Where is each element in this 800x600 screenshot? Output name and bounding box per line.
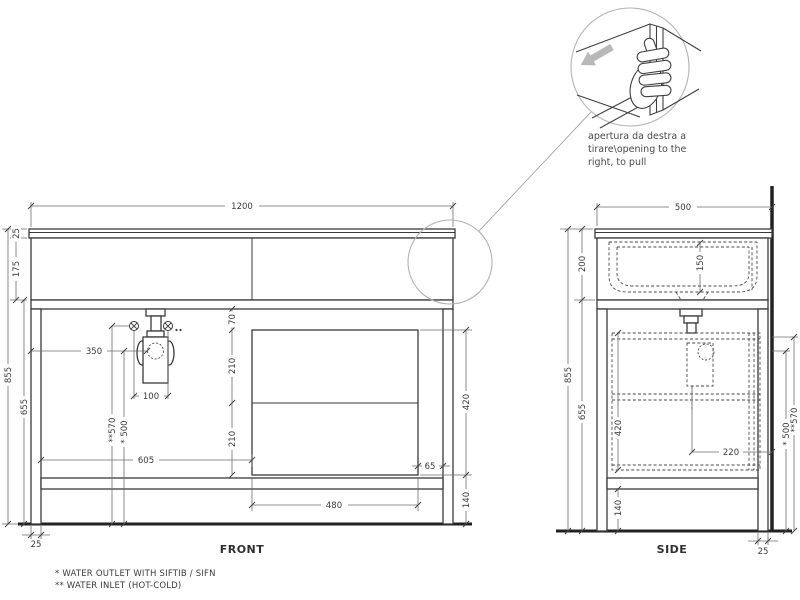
side-dim-top-section: 200: [577, 253, 588, 275]
dim-drain-offset: 220: [719, 447, 743, 458]
front-lower-rail: [41, 478, 443, 489]
dim-box-height: 420: [461, 391, 472, 413]
svg-text:500: 500: [675, 203, 691, 213]
svg-text:210: 210: [228, 431, 238, 447]
side-dim-inlet-height: **570: [789, 405, 800, 435]
front-left-leg: [31, 309, 41, 524]
side-dim-bottom-clearance: 140: [613, 497, 624, 519]
side-lower-rail: [607, 478, 758, 489]
dim-total-height: 855: [3, 364, 14, 386]
water-inlet-left-icon: [130, 322, 139, 331]
svg-text:175: 175: [12, 261, 22, 277]
svg-text:140: 140: [462, 492, 472, 508]
svg-text:220: 220: [723, 448, 739, 458]
svg-text:480: 480: [326, 501, 342, 511]
svg-text:420: 420: [614, 420, 624, 436]
dim-width-total: 1200: [225, 201, 259, 212]
detail-callout: apertura da destra a tirare\opening to t…: [571, 8, 701, 168]
front-countertop: [29, 229, 455, 238]
svg-text:* 500: * 500: [120, 420, 130, 443]
side-drain-dashed-circle: [698, 344, 714, 360]
front-right-leg: [443, 309, 453, 524]
side-dim-leg-width: 25: [758, 547, 769, 557]
svg-text:420: 420: [462, 394, 472, 410]
dim-bottom-clearance: 140: [461, 489, 472, 511]
side-view: 500 220 25 200 150 855 655 420 140: [556, 186, 800, 557]
dim-gap-right: 65: [422, 461, 439, 472]
svg-text:70: 70: [228, 314, 238, 325]
svg-text:**570: **570: [790, 408, 800, 433]
detail-caption-line3: right, to pull: [588, 157, 646, 168]
svg-text:65: 65: [425, 462, 436, 472]
detail-circle: [571, 8, 689, 126]
svg-text:605: 605: [138, 456, 154, 466]
note-water-inlet: ** WATER INLET (HOT-COLD): [55, 581, 181, 591]
side-back-leg: [758, 309, 768, 531]
dim-trap-offset: 350: [81, 346, 107, 357]
dim-inlet-spacing: 100: [139, 391, 164, 402]
detail-leader-line: [479, 112, 591, 231]
svg-text:855: 855: [564, 367, 574, 383]
detail-caption-line2: tirare\opening to the: [588, 144, 687, 155]
detail-caption-line1: apertura da destra a: [588, 131, 686, 142]
water-inlet-right-icon: [164, 322, 182, 332]
note-water-outlet: * WATER OUTLET WITH SIFTIB / SIFN: [55, 569, 216, 579]
svg-text:1200: 1200: [231, 202, 253, 212]
siphon-trap: [137, 309, 174, 383]
dim-drawer-lower: 210: [227, 428, 238, 450]
dim-inlet-height: **570: [107, 414, 118, 446]
side-siphon-trap: [680, 309, 702, 333]
side-dim-basin-depth: 150: [695, 252, 706, 274]
svg-text:150: 150: [696, 255, 706, 271]
svg-text:200: 200: [578, 256, 588, 272]
side-dim-lower-height: 655: [577, 401, 588, 423]
vanity-technical-drawing: 1200 350 100 605 65 480 25 25: [0, 0, 800, 600]
front-drawer-band: [31, 238, 453, 300]
footnotes: * WATER OUTLET WITH SIFTIB / SIFN ** WAT…: [55, 569, 216, 591]
dim-box-offset: 605: [133, 455, 159, 466]
dim-outlet-height: * 500: [119, 417, 130, 447]
svg-text:140: 140: [614, 500, 624, 516]
svg-text:25: 25: [12, 228, 22, 239]
technical-drawing-page: 1200 350 100 605 65 480 25 25: [0, 0, 800, 600]
dim-lower-height: 655: [19, 396, 30, 418]
dim-top-thickness: 25: [11, 226, 22, 242]
dim-band-height: 175: [11, 257, 22, 281]
side-dim-box-height: 420: [613, 417, 624, 439]
svg-text:210: 210: [228, 358, 238, 374]
svg-text:855: 855: [4, 367, 14, 383]
side-view-label: SIDE: [657, 543, 688, 556]
front-shelf: [31, 300, 453, 309]
dim-depth-total: 500: [669, 202, 697, 213]
side-front-leg: [597, 309, 607, 531]
dim-box-width: 480: [321, 500, 348, 511]
side-countertop: [595, 229, 772, 238]
front-view: 1200 350 100 605 65 480 25 25: [2, 112, 591, 556]
svg-text:100: 100: [143, 392, 159, 402]
dim-shelf-gap: 70: [227, 312, 238, 328]
svg-text:350: 350: [86, 347, 102, 357]
svg-text:655: 655: [578, 404, 588, 420]
side-dim-total-height: 855: [563, 364, 574, 386]
svg-text:**570: **570: [108, 418, 118, 443]
svg-text:655: 655: [20, 399, 30, 415]
dim-leg-width: 25: [31, 540, 42, 550]
side-shelf: [597, 300, 768, 309]
front-view-label: FRONT: [220, 543, 265, 556]
dim-drawer-upper: 210: [227, 355, 238, 377]
